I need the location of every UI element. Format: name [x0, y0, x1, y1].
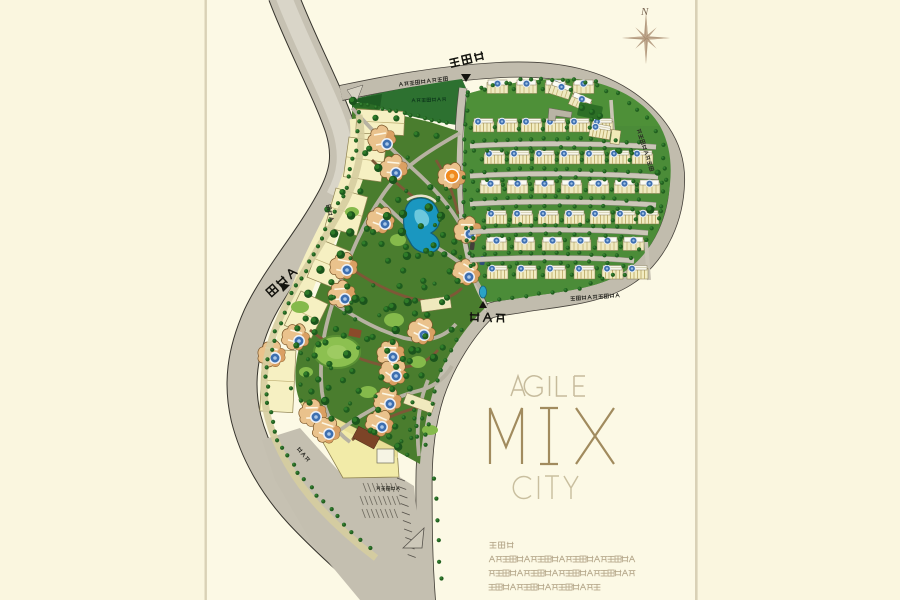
svg-text:N: N	[640, 6, 649, 18]
